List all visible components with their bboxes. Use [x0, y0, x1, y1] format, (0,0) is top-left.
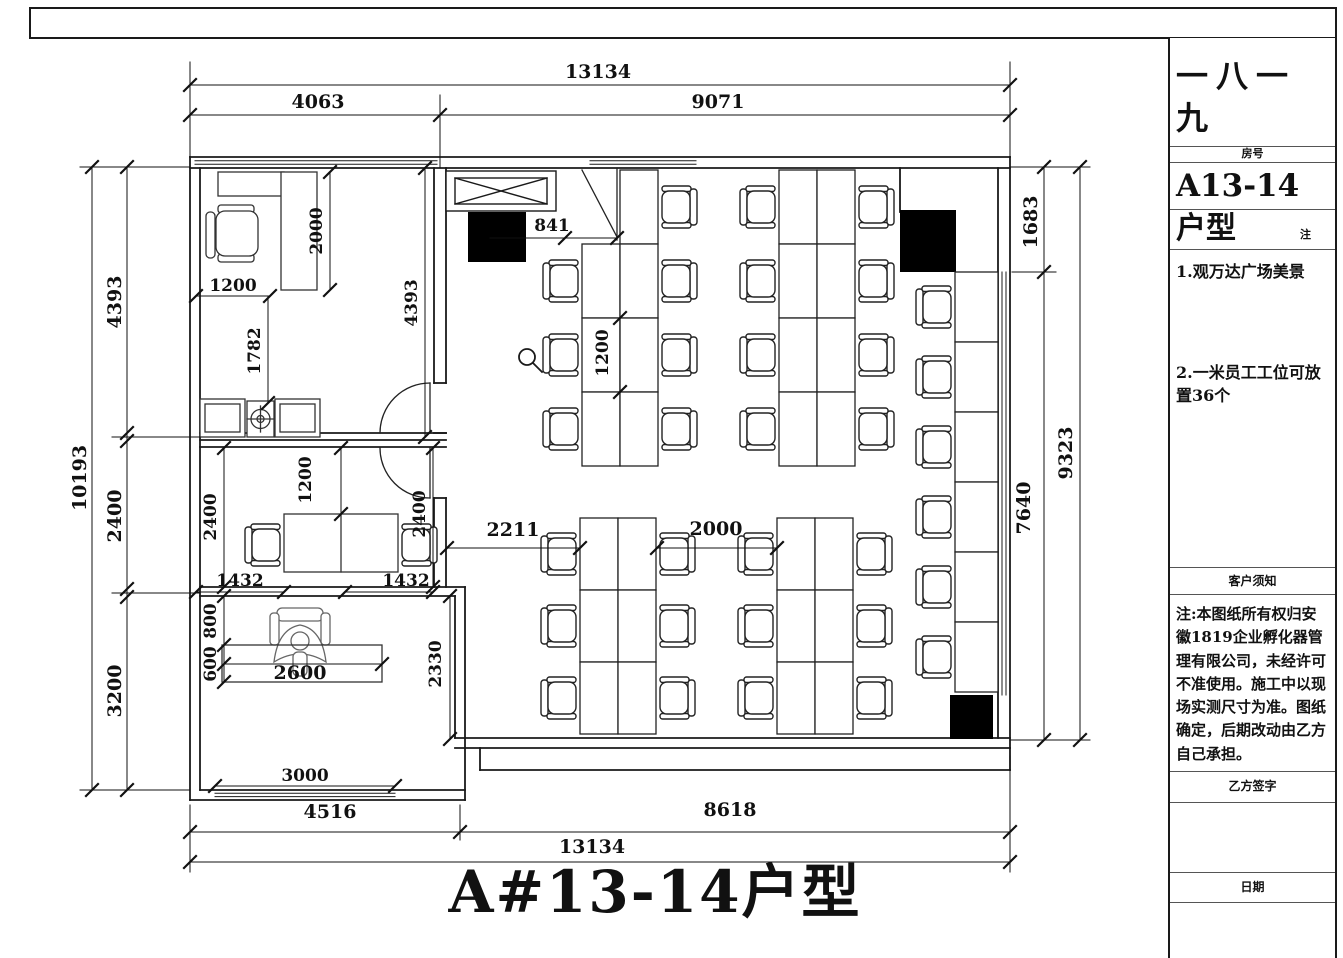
dim-left-total: 10193	[69, 445, 91, 511]
dim-left-lower: 3200	[104, 665, 126, 718]
chair	[916, 286, 951, 328]
dim-top-total: 13134	[565, 61, 631, 83]
desk-cell	[955, 482, 998, 552]
desk-cell	[620, 170, 658, 244]
meeting-room-furniture	[245, 514, 437, 572]
sofa-set	[200, 399, 320, 437]
desk-cell	[582, 244, 620, 318]
date-label: 日期	[1170, 873, 1335, 903]
desk-cell	[955, 552, 998, 622]
desk-cell	[777, 662, 815, 734]
magnifier-symbol	[519, 349, 542, 372]
desk-cell	[582, 392, 620, 466]
desk-cell	[620, 392, 658, 466]
dim-exec-desk: 2600	[274, 662, 327, 684]
chair	[541, 605, 576, 647]
desk-cell	[618, 662, 656, 734]
chair	[738, 533, 773, 575]
room-no-label: 房号	[1170, 147, 1335, 163]
chair	[541, 533, 576, 575]
dim-room1-width: 1200	[209, 276, 256, 296]
sheet-frame	[30, 8, 1336, 958]
chair	[916, 356, 951, 398]
title-block: 一八一九 房号 A13-14 户型 注 1.观万达广场美景 2.一米员工工位可放…	[1168, 38, 1335, 958]
chair	[859, 334, 894, 376]
fixtures	[446, 171, 993, 739]
dim-bottom-right: 8618	[704, 799, 757, 821]
dim-right-lower: 7640	[1013, 482, 1035, 535]
chair	[740, 408, 775, 450]
column	[950, 695, 993, 739]
dim-meeting-left: 2400	[201, 493, 221, 540]
chair	[543, 260, 578, 302]
dim-bottom-window: 3000	[281, 766, 328, 786]
column	[900, 210, 956, 272]
unit-label: 户型	[1176, 211, 1236, 246]
desk-cell	[777, 590, 815, 662]
double-door-upper-leaf	[380, 383, 430, 433]
chair	[916, 566, 951, 608]
chair	[662, 334, 697, 376]
desk-cell	[580, 662, 618, 734]
dim-exec-depth: 600	[201, 646, 221, 682]
chair	[859, 408, 894, 450]
chair	[660, 677, 695, 719]
chair	[662, 260, 697, 302]
chair	[660, 605, 695, 647]
desk	[218, 172, 284, 196]
desk-cell	[620, 244, 658, 318]
dimension-ticks	[86, 79, 1086, 868]
desk-cell	[955, 272, 998, 342]
dim-bottom-total: 13134	[559, 836, 625, 858]
chair	[541, 677, 576, 719]
chair	[543, 334, 578, 376]
chair	[857, 677, 892, 719]
desk-cell	[817, 244, 855, 318]
selling-point-2: 2.一米员工工位可放置36个	[1176, 361, 1329, 407]
customer-notice-text: 注:本图纸所有权归安徽1819企业孵化器管理有限公司，未经许可不准使用。施工中以…	[1170, 595, 1335, 772]
party-b-sign-area	[1170, 803, 1335, 873]
chair	[859, 186, 894, 228]
desk-cell	[580, 590, 618, 662]
desk-cell	[955, 342, 998, 412]
party-b-sign-label: 乙方签字	[1170, 772, 1335, 803]
floor-plan-canvas: 13134 4063 9071 10193 4393 2400 3200 168…	[0, 0, 1343, 958]
desk-cell	[777, 518, 815, 590]
chair	[859, 260, 894, 302]
dim-meeting-bl: 1432	[216, 571, 263, 591]
dim-left-middle: 2400	[104, 490, 126, 543]
note-label: 注	[1300, 216, 1311, 250]
chair	[857, 605, 892, 647]
desk-cell	[779, 244, 817, 318]
chair	[543, 408, 578, 450]
chair	[740, 260, 775, 302]
dim-bottom-left: 4516	[304, 801, 357, 823]
dim-left-upper: 4393	[104, 276, 126, 329]
ac-unit-crossed-box	[446, 171, 556, 211]
dim-top-right: 9071	[692, 91, 745, 113]
desk-cell	[779, 392, 817, 466]
selling-point-1: 1.观万达广场美景	[1176, 260, 1329, 283]
desk-cell	[620, 318, 658, 392]
chair	[740, 186, 775, 228]
desk-cell	[815, 662, 853, 734]
chair	[740, 334, 775, 376]
dim-office-gap-right: 2000	[690, 518, 743, 540]
entry-door	[582, 168, 617, 240]
dim-meeting-br: 1432	[382, 571, 429, 591]
chair	[916, 636, 951, 678]
dim-entry-door: 841	[534, 216, 570, 236]
dim-room1-return: 2000	[307, 207, 327, 254]
dim-exec-clear: 800	[201, 603, 221, 639]
chair	[857, 533, 892, 575]
desk-cell	[779, 318, 817, 392]
office-chair	[206, 205, 258, 262]
chair	[738, 605, 773, 647]
dim-desk-pitch: 1200	[593, 329, 613, 376]
desk-cell	[955, 622, 998, 692]
unit-type-row: 户型 注	[1170, 210, 1335, 250]
dim-meeting-right: 2400	[410, 490, 430, 537]
desk-cell	[618, 590, 656, 662]
plan-title: A#13-14户型	[447, 858, 861, 926]
dim-office-gap-left: 2211	[487, 519, 540, 541]
desk-cell	[955, 412, 998, 482]
dim-right-total: 9323	[1055, 427, 1077, 480]
dim-meeting-table: 1200	[296, 456, 316, 503]
room-no: A13-14	[1170, 163, 1335, 210]
desk-cell	[779, 170, 817, 244]
dim-exec-corridor: 2330	[426, 640, 446, 687]
room1-furniture	[200, 172, 320, 437]
desk-cell	[815, 590, 853, 662]
column	[468, 212, 526, 262]
desk-cell	[815, 518, 853, 590]
dim-room1-sofa: 1782	[245, 327, 265, 374]
dim-top-left: 4063	[292, 91, 345, 113]
date-area	[1170, 903, 1335, 958]
selling-points: 1.观万达广场美景 2.一米员工工位可放置36个	[1170, 250, 1335, 568]
customer-notice-label: 客户须知	[1170, 568, 1335, 595]
desk-cell	[817, 392, 855, 466]
dim-room1-height: 4393	[402, 279, 422, 326]
chair	[662, 408, 697, 450]
chair	[916, 426, 951, 468]
chair	[662, 186, 697, 228]
cad-drawing-page: 13134 4063 9071 10193 4393 2400 3200 168…	[0, 0, 1343, 958]
desk-cell	[817, 318, 855, 392]
chair	[916, 496, 951, 538]
desk-cell	[817, 170, 855, 244]
chair	[738, 677, 773, 719]
dim-right-upper: 1683	[1020, 196, 1042, 249]
desk-cell	[580, 518, 618, 590]
project-name: 一八一九	[1170, 38, 1335, 147]
